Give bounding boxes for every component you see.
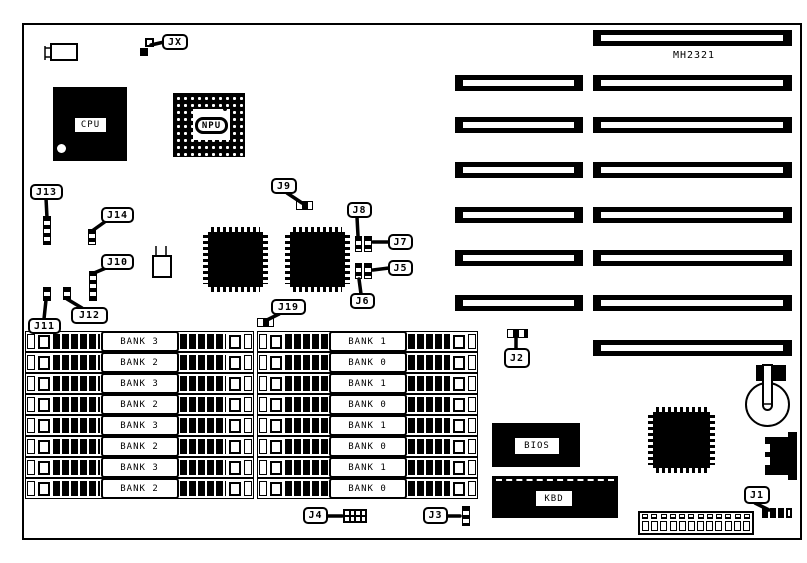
npu-pin1-dot <box>223 107 227 111</box>
isa-slot-right-3 <box>593 117 792 133</box>
isa-slot-right-7 <box>593 295 792 311</box>
npu-label: NPU <box>195 117 228 134</box>
bios-label: BIOS <box>514 437 560 455</box>
simm-bank-label: BANK 3 <box>101 415 179 436</box>
jumper-label-jx: JX <box>162 34 188 50</box>
j2-jumper <box>507 329 528 338</box>
isa-slot-right-1 <box>593 30 792 46</box>
isa-slot-left-2 <box>455 117 583 133</box>
simm-socket: BANK 0 <box>257 478 478 499</box>
simm-socket: BANK 3 <box>25 415 254 436</box>
isa-slot-left-6 <box>455 295 583 311</box>
simm-bank-label: BANK 2 <box>101 478 179 499</box>
j3-header <box>462 506 470 526</box>
simm-socket: BANK 3 <box>25 457 254 478</box>
bios-chip: BIOS <box>492 423 580 467</box>
jx-jumper <box>140 48 148 56</box>
jumper-label-j5: J5 <box>388 260 413 276</box>
simm-socket: BANK 2 <box>25 394 254 415</box>
j11-header <box>43 287 51 301</box>
simm-bank-label: BANK 0 <box>329 394 407 415</box>
jumper-label-j1: J1 <box>744 486 770 504</box>
simm-socket: BANK 1 <box>257 457 478 478</box>
cpu-chip: CPU <box>53 87 127 161</box>
j5-header <box>364 263 372 279</box>
simm-socket: BANK 1 <box>257 415 478 436</box>
j14-header <box>88 229 96 245</box>
simm-bank-label: BANK 0 <box>329 436 407 457</box>
j9-jumper <box>296 201 313 210</box>
kbd-label: KBD <box>535 490 573 507</box>
j7-header <box>364 236 372 252</box>
qfp-chip-1 <box>203 227 268 292</box>
simm-socket: BANK 0 <box>257 436 478 457</box>
jumper-label-j4: J4 <box>303 507 328 524</box>
simm-socket: BANK 0 <box>257 352 478 373</box>
simm-socket: BANK 0 <box>257 394 478 415</box>
jumper-label-j19: J19 <box>271 299 306 315</box>
simm-bank-label: BANK 1 <box>329 331 407 352</box>
simm-bank-label: BANK 2 <box>101 352 179 373</box>
chipset-chip <box>648 407 715 473</box>
kbd-controller-chip: KBD <box>492 476 618 518</box>
isa-slot-left-1 <box>455 75 583 91</box>
simm-bank-label: BANK 3 <box>101 373 179 394</box>
kbd-dashed-line <box>496 479 614 481</box>
j1-jumper <box>762 508 792 518</box>
j12-header <box>63 287 71 300</box>
j8-header <box>355 236 362 252</box>
crystal <box>152 255 172 278</box>
jumper-label-j7: J7 <box>388 234 413 250</box>
isa-slot-right-8 <box>593 340 792 356</box>
jumper-label-j13: J13 <box>30 184 63 200</box>
jumper-label-j2: J2 <box>504 348 530 368</box>
isa-slot-left-5 <box>455 250 583 266</box>
keyboard-connector <box>765 432 797 480</box>
simm-bank-label: BANK 2 <box>101 394 179 415</box>
simm-socket: BANK 2 <box>25 478 254 499</box>
isa-slot-right-2 <box>593 75 792 91</box>
jumper-label-j12: J12 <box>71 307 108 324</box>
isa-slot-right-5 <box>593 207 792 223</box>
power-connector-pins-top <box>640 513 752 519</box>
power-connector-pins-bottom <box>640 521 752 533</box>
simm-bank-label: BANK 1 <box>329 457 407 478</box>
oscillator <box>50 43 78 61</box>
simm-socket: BANK 2 <box>25 436 254 457</box>
simm-socket: BANK 3 <box>25 373 254 394</box>
power-connector <box>638 511 754 535</box>
simm-bank-label: BANK 1 <box>329 373 407 394</box>
j10-header <box>89 271 97 301</box>
simm-bank-label: BANK 0 <box>329 352 407 373</box>
simm-socket: BANK 1 <box>257 373 478 394</box>
simm-socket: BANK 3 <box>25 331 254 352</box>
simm-socket: BANK 1 <box>257 331 478 352</box>
cpu-pin1-dot <box>57 144 66 153</box>
jumper-label-j6: J6 <box>350 293 375 309</box>
motherboard-diagram: CPU NPU BIOS KBD M <box>0 0 807 563</box>
isa-slot-right-6 <box>593 250 792 266</box>
simm-bank-label: BANK 1 <box>329 415 407 436</box>
jumper-label-j3: J3 <box>423 507 448 524</box>
jumper-label-j9: J9 <box>271 178 297 194</box>
simm-bank-label: BANK 3 <box>101 331 179 352</box>
jumper-label-j10: J10 <box>101 254 134 270</box>
isa-slot-left-4 <box>455 207 583 223</box>
j6-header <box>355 263 362 279</box>
simm-bank-label: BANK 0 <box>329 478 407 499</box>
qfp-chip-2 <box>285 227 350 292</box>
isa-slot-left-3 <box>455 162 583 178</box>
jx-jumper-cap <box>145 38 154 47</box>
board-model-label: MH2321 <box>664 50 724 61</box>
battery-post <box>762 364 773 411</box>
npu-socket: NPU <box>173 93 245 157</box>
isa-slot-right-4 <box>593 162 792 178</box>
simm-socket: BANK 2 <box>25 352 254 373</box>
jumper-label-j11: J11 <box>28 318 61 334</box>
jumper-label-j8: J8 <box>347 202 372 218</box>
simm-bank-label: BANK 2 <box>101 436 179 457</box>
j13-header <box>43 216 51 245</box>
jumper-label-j14: J14 <box>101 207 134 223</box>
j19-jumper <box>257 318 274 327</box>
simm-bank-label: BANK 3 <box>101 457 179 478</box>
cpu-label: CPU <box>74 117 107 133</box>
j4-header <box>343 509 367 523</box>
